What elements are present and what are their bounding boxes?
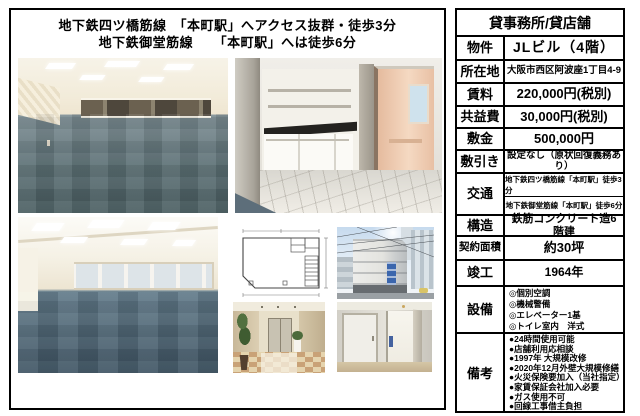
- frosted-glass-door: [342, 313, 378, 364]
- property-spec-table: 貸事務所/貸店舗 物件 JLビル（4階） 所在地 大阪市西区阿波座1丁目4-9 …: [455, 8, 625, 413]
- carpet-tiles: [18, 292, 218, 373]
- door-window: [408, 84, 429, 124]
- photo-entrance-lobby: [233, 302, 325, 373]
- row-label: 交通: [457, 174, 505, 214]
- facility-item: ◎個別空調: [509, 288, 623, 299]
- row-facilities: 設備 ◎個別空調 ◎機械警備 ◎エレベーター1基 ◎トイレ室内 洋式: [457, 285, 623, 332]
- row-label: 敷引き: [457, 151, 505, 172]
- door-leaf: [413, 310, 422, 364]
- facility-list: ◎個別空調 ◎機械警備 ◎エレベーター1基 ◎トイレ室内 洋式: [505, 287, 623, 332]
- ceiling-light: [87, 220, 124, 228]
- row-value: 220,000円(税別): [505, 84, 623, 105]
- photo-building-exterior: [337, 227, 434, 299]
- ceiling-light: [60, 237, 88, 243]
- photo-floor-plan: [233, 226, 333, 299]
- row-value: JLビル（4階）: [505, 37, 623, 59]
- door-rail: [389, 139, 423, 143]
- tile-floor: [337, 362, 432, 373]
- photo-large-office: [18, 217, 218, 373]
- row-label: 構造: [457, 216, 505, 235]
- row-rent: 賃料 220,000円(税別): [457, 82, 623, 105]
- row-common-fee: 共益費 30,000円(税別): [457, 105, 623, 127]
- power-lines: [337, 227, 434, 299]
- photo-office-room: [18, 58, 228, 213]
- row-value: 鉄筋コンクリート造6階建: [505, 216, 623, 235]
- row-label: 備考: [457, 334, 505, 413]
- row-label: 共益費: [457, 107, 505, 127]
- row-access: 交通 地下鉄四ツ橋筋線「本町駅」徒歩3分 地下鉄御堂筋線「本町駅」徒歩6分: [457, 172, 623, 214]
- row-label: 賃料: [457, 84, 505, 105]
- ceiling-light: [104, 61, 140, 67]
- photo-hallway: [337, 302, 432, 372]
- row-label: 所在地: [457, 61, 505, 82]
- row-structure: 構造 鉄筋コンクリート造6階建: [457, 214, 623, 235]
- ceiling-light: [172, 240, 196, 246]
- kitchen-niche: [262, 69, 359, 181]
- access-line-1: 地下鉄四ツ橋筋線「本町駅」徒歩3分: [505, 174, 623, 196]
- access-line-2: 地下鉄御堂筋線「本町駅」徒歩6分: [505, 196, 623, 214]
- row-value: 1964年: [505, 261, 623, 285]
- headline-line2: 地下鉄御堂筋線 「本町駅」へは徒歩6分: [11, 32, 444, 51]
- row-label: 物件: [457, 37, 505, 59]
- remarks-list: ●24時間使用可能 ●店舗利用応相談 ●1997年 大規模改修 ●2020年12…: [505, 334, 625, 413]
- row-deposit-deduction: 敷引き 設定なし（原状回復義務あり）: [457, 149, 623, 172]
- row-property: 物件 JLビル（4階）: [457, 35, 623, 59]
- row-value: 500,000円: [505, 129, 623, 149]
- row-label: 設備: [457, 287, 505, 332]
- row-completion-year: 竣工 1964年: [457, 259, 623, 285]
- ceiling-light: [45, 63, 77, 69]
- photo-kitchenette: [235, 58, 442, 213]
- door-frame: [235, 58, 260, 213]
- white-planter: [294, 339, 301, 352]
- row-value: 設定なし（原状回復義務あり）: [505, 151, 623, 172]
- floor-plan-drawing: [233, 226, 333, 299]
- access-lines: 地下鉄四ツ橋筋線「本町駅」徒歩3分 地下鉄御堂筋線「本町駅」徒歩6分: [505, 174, 623, 214]
- remark-item: ●回線工事借主負担: [509, 402, 625, 412]
- row-value: 大阪市西区阿波座1丁目4-9: [505, 61, 623, 82]
- cabinet-handle: [266, 139, 350, 141]
- row-deposit: 敷金 500,000円: [457, 127, 623, 149]
- row-remarks: 備考 ●24時間使用可能 ●店舗利用応相談 ●1997年 大規模改修 ●2020…: [457, 332, 623, 413]
- ceiling-light: [147, 222, 180, 230]
- table-title: 貸事務所/貸店舗: [489, 13, 591, 33]
- shelf: [268, 89, 352, 92]
- downlight: [261, 306, 263, 308]
- floor-runner: [261, 353, 298, 373]
- row-contract-area: 契約面積 約30坪: [457, 235, 623, 259]
- small-blue-sign: [389, 336, 393, 347]
- ceiling-light: [138, 77, 164, 82]
- facility-item: ◎機械警備: [509, 299, 623, 310]
- tile-floor: [260, 170, 442, 213]
- row-value: 約30坪: [505, 237, 623, 259]
- row-address: 所在地 大阪市西区阿波座1丁目4-9: [457, 59, 623, 82]
- facility-item: ◎トイレ室内 洋式: [509, 321, 623, 332]
- row-label: 契約面積: [457, 237, 505, 259]
- glass-entrance-door: [268, 318, 292, 356]
- carpet-tiles: [18, 114, 228, 213]
- ceiling-light: [163, 64, 195, 70]
- window-band: [74, 262, 214, 289]
- ceiling-light: [79, 75, 105, 80]
- row-value: 30,000円(税別): [505, 107, 623, 127]
- ceiling-light: [31, 223, 64, 231]
- ceiling-light: [120, 239, 148, 245]
- downlight: [277, 306, 279, 308]
- shelf: [268, 105, 352, 108]
- row-label: 竣工: [457, 261, 505, 285]
- facility-item: ◎エレベーター1基: [509, 310, 623, 321]
- row-label: 敷金: [457, 129, 505, 149]
- downlight: [294, 306, 296, 308]
- potted-plant: [236, 312, 253, 349]
- table-title-row: 貸事務所/貸店舗: [457, 10, 623, 35]
